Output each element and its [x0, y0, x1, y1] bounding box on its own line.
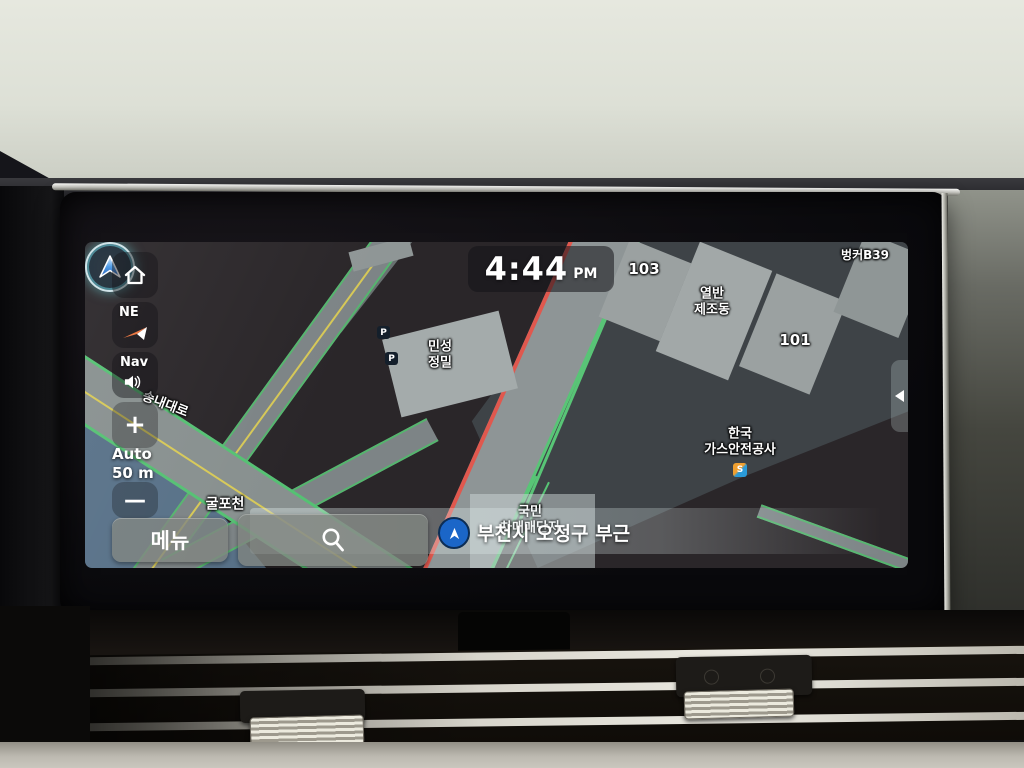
current-location-text[interactable]: 부천시 오정구 부근	[477, 519, 630, 546]
dash-lower-surface	[0, 742, 1024, 768]
label-gas-line2: 가스안전공사	[704, 442, 776, 458]
dash-left-panel	[0, 186, 64, 626]
kgs-logo-icon: S	[733, 463, 747, 477]
clock: 4:44 PM	[468, 246, 614, 292]
nav-volume-button[interactable]: Nav	[112, 352, 158, 398]
compass-needle-icon	[122, 323, 150, 343]
label-factory: 열반 제조동	[694, 286, 730, 317]
compass-heading: NE	[119, 305, 139, 320]
map-scale-mode: Auto	[112, 445, 164, 464]
label-bunker: 벙커B39	[841, 248, 889, 262]
vent-shadow	[0, 644, 1024, 753]
label-gas-line1: 한국	[704, 426, 776, 442]
zoom-out-button[interactable]: —	[112, 482, 158, 518]
clock-meridiem: PM	[573, 266, 597, 282]
vent-dial-icon	[704, 669, 719, 684]
chevron-left-icon	[895, 390, 904, 402]
menu-button[interactable]: 메뉴	[112, 518, 228, 562]
parking-icon: P	[385, 352, 398, 365]
home-button[interactable]	[112, 252, 158, 298]
search-icon	[318, 525, 348, 555]
label-minseong: 민성 정밀	[428, 339, 452, 370]
map-scale-button[interactable]: Auto 50 m	[112, 445, 164, 483]
clock-time: 4:44	[485, 250, 569, 288]
edge-panel-handle[interactable]	[891, 360, 908, 432]
gps-location-icon	[438, 517, 470, 549]
air-vents	[0, 644, 1024, 753]
speaker-icon	[122, 373, 144, 391]
label-building-103: 103	[628, 260, 659, 278]
label-minseong-line1: 민성	[428, 339, 452, 355]
vent-dial-icon	[760, 668, 775, 683]
right-vent-handle	[684, 689, 795, 720]
home-icon	[122, 263, 148, 287]
label-building-101: 101	[779, 331, 810, 349]
label-minseong-line2: 정밀	[428, 355, 452, 371]
zoom-in-button[interactable]: +	[112, 402, 158, 448]
nav-map[interactable]: P P 103 열반 제조동 101 민성 정밀 한국 가스안전공사 S 국민 …	[85, 242, 908, 568]
dashboard-photo: P P 103 열반 제조동 101 민성 정밀 한국 가스안전공사 S 국민 …	[0, 0, 1024, 768]
search-button[interactable]	[238, 514, 428, 566]
parking-icon: P	[377, 326, 390, 339]
dash-right-panel	[948, 190, 1024, 626]
label-factory-line1: 열반	[694, 286, 730, 302]
infotainment-screen: P P 103 열반 제조동 101 민성 정밀 한국 가스안전공사 S 국민 …	[85, 242, 908, 568]
nav-volume-label: Nav	[120, 355, 148, 370]
compass-button[interactable]: NE	[112, 302, 158, 348]
label-river: 굴포천	[206, 497, 245, 514]
label-factory-line2: 제조동	[694, 302, 730, 318]
label-gas-safety: 한국 가스안전공사	[704, 426, 776, 457]
map-scale-value: 50 m	[112, 464, 164, 483]
